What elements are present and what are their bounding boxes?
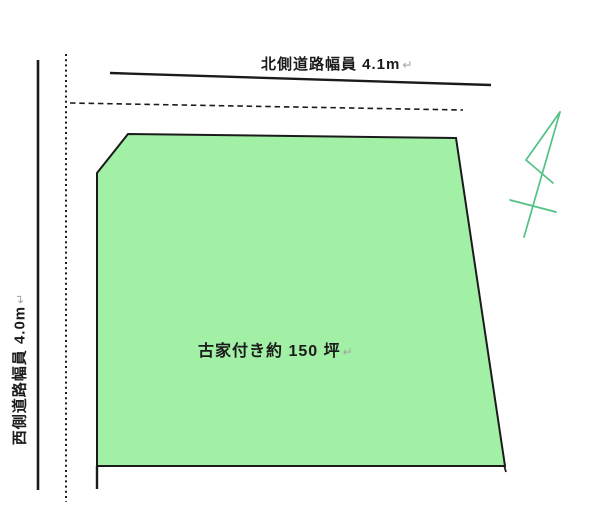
parcel-label-text: 古家付き約 150 坪 bbox=[198, 343, 341, 360]
north-road-label: 北側道路幅員 4.1m↵ bbox=[261, 53, 413, 74]
west-road-label: 西側道路幅員 4.0m↵ bbox=[10, 289, 32, 450]
parcel-shape bbox=[97, 134, 505, 466]
return-mark-icon: ↵ bbox=[14, 293, 28, 304]
north-road-label-text: 北側道路幅員 4.1m bbox=[261, 56, 400, 73]
site-plan-drawing bbox=[0, 0, 600, 522]
parcel-label: 古家付き約 150 坪↵ bbox=[198, 337, 354, 361]
north-arrow-icon bbox=[510, 112, 560, 237]
north-road-outer-line bbox=[110, 73, 491, 85]
north-road-dashed-line bbox=[70, 103, 463, 110]
west-road-label-text: 西側道路幅員 4.0m bbox=[12, 306, 29, 445]
site-plan-diagram: 北側道路幅員 4.1m↵ 西側道路幅員 4.0m↵ 古家付き約 150 坪↵ bbox=[0, 0, 600, 522]
north-arrow-crossbar bbox=[510, 200, 556, 212]
return-mark-icon: ↵ bbox=[402, 58, 413, 72]
return-mark-icon: ↵ bbox=[343, 345, 354, 359]
